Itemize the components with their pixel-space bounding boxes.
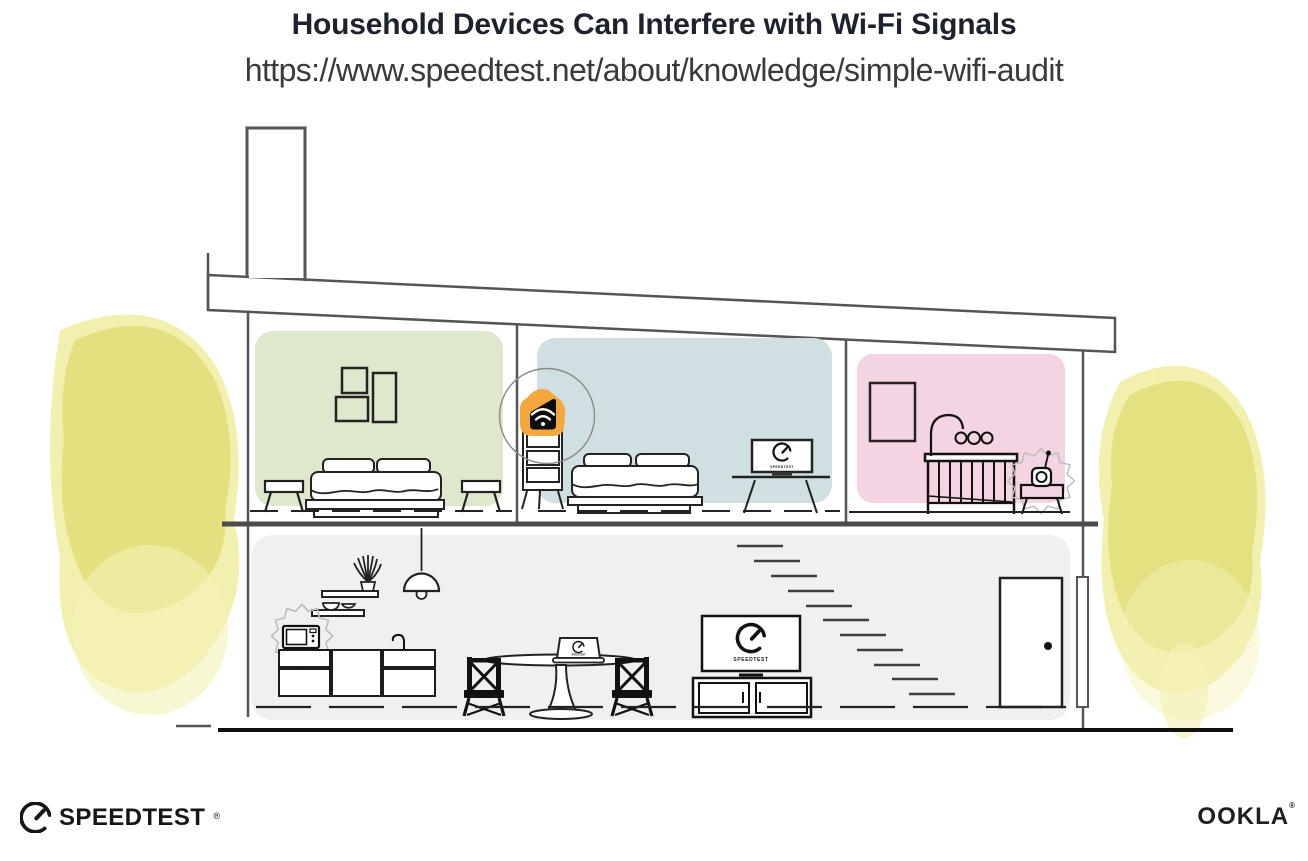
speedtest-logo: SPEEDTEST® [20, 802, 220, 833]
tv: SPEEDTEST [702, 616, 800, 675]
bowl [323, 603, 339, 610]
infographic-page: Household Devices Can Interfere with Wi-… [0, 0, 1308, 861]
microwave [283, 626, 319, 648]
ookla-wordmark: OOKLA [1197, 803, 1289, 830]
tv-console [693, 678, 811, 717]
door-knob [1044, 642, 1052, 650]
ookla-reg-mark: ® [1289, 801, 1296, 810]
speedtest-gauge-icon [20, 802, 51, 833]
desk-laptop: SPEEDTEST [752, 440, 812, 476]
ookla-logo: OOKLA® [1197, 803, 1296, 831]
chimney [246, 128, 307, 281]
plant-pot [361, 582, 375, 591]
tree-left [50, 315, 239, 715]
bowl [342, 604, 355, 608]
wall-pillar [1077, 577, 1088, 707]
house-illustration: SPEEDTEST [0, 0, 1308, 861]
dining-laptop: SPEEDTEST [553, 638, 604, 663]
tree-right [1099, 366, 1266, 738]
tv-caption: SPEEDTEST [733, 657, 768, 663]
dining-laptop-caption: SPEEDTEST [571, 654, 586, 657]
bed-green [306, 459, 444, 517]
desk-laptop-caption: SPEEDTEST [770, 465, 794, 469]
ground-line [176, 726, 1233, 730]
speedtest-reg-mark: ® [213, 811, 220, 821]
speedtest-wordmark: SPEEDTEST [59, 804, 205, 832]
door [1000, 578, 1062, 707]
